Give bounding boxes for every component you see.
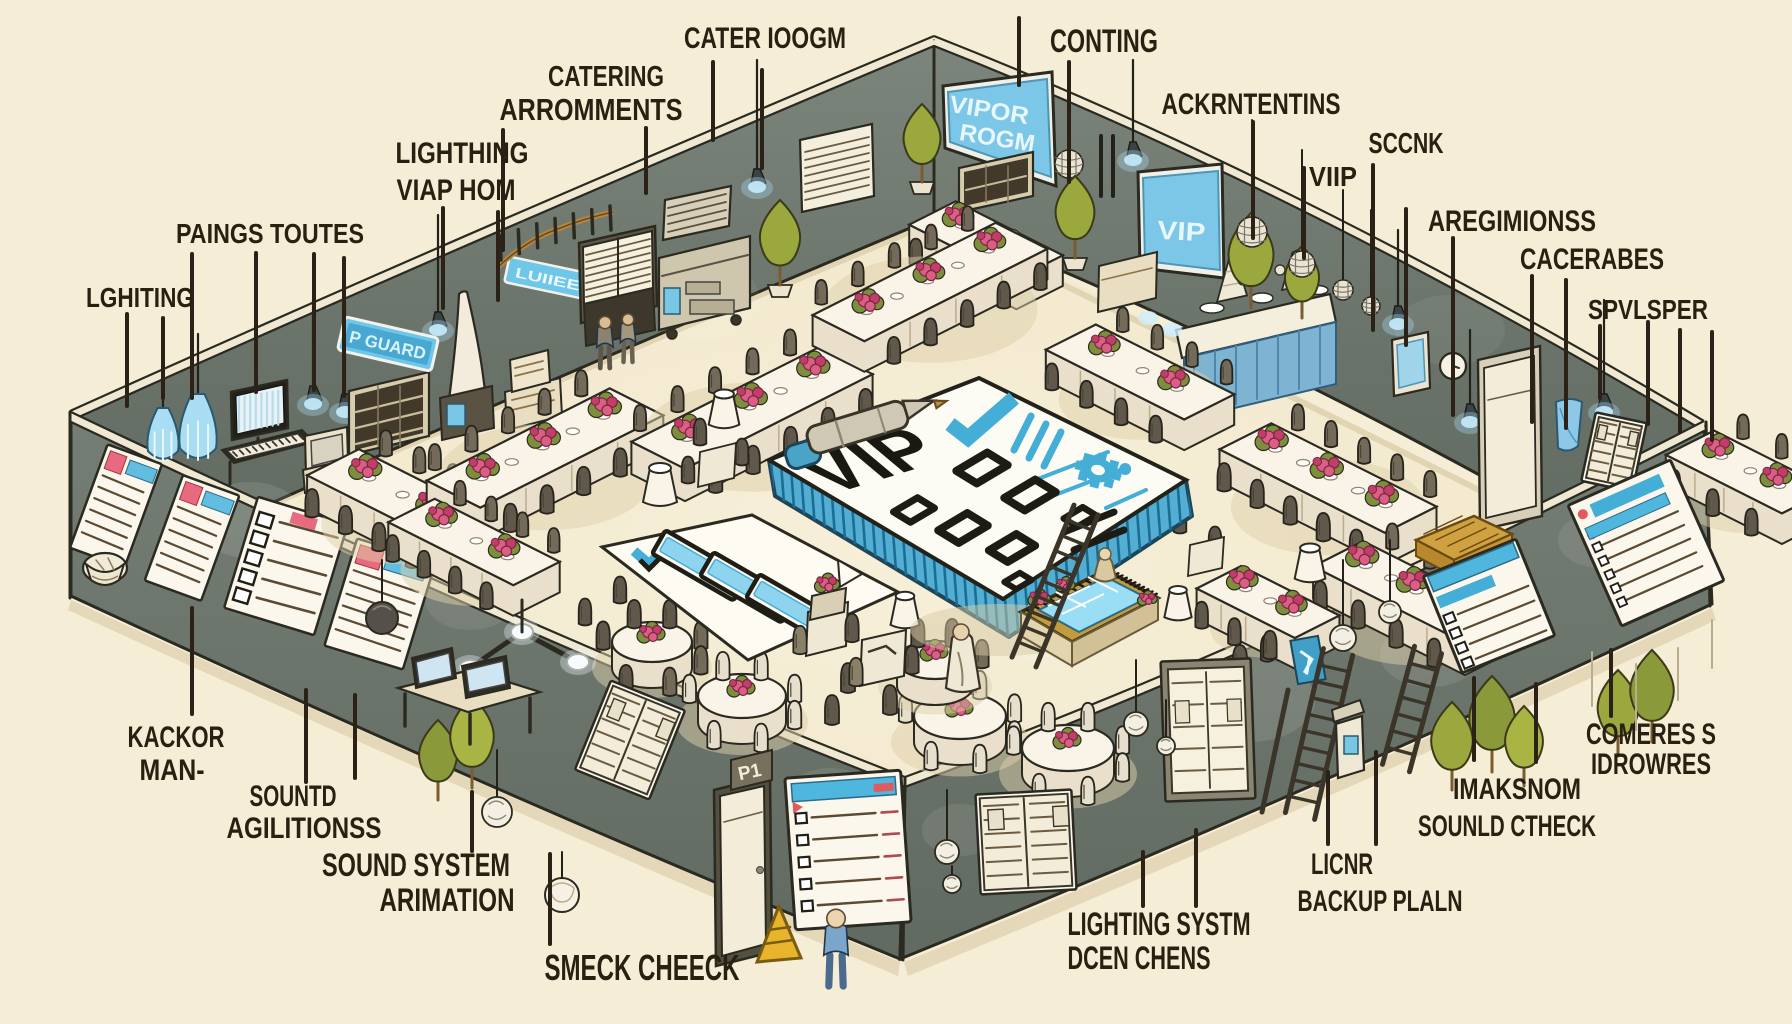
svg-text:CACERABES: CACERABES — [1520, 243, 1664, 276]
svg-text:VIIP: VIIP — [1309, 161, 1357, 192]
svg-text:PAINGS TOUTES: PAINGS TOUTES — [176, 218, 364, 249]
svg-text:IMAKSNOM: IMAKSNOM — [1453, 773, 1581, 806]
svg-text:DCEN CHENS: DCEN CHENS — [1068, 940, 1211, 976]
svg-text:AREGIMIONSS: AREGIMIONSS — [1428, 205, 1596, 238]
svg-text:LGHITING: LGHITING — [86, 282, 194, 313]
svg-text:ACKRNTENTINS: ACKRNTENTINS — [1162, 88, 1341, 121]
svg-text:SOUNLD CTHECK: SOUNLD CTHECK — [1418, 810, 1596, 843]
svg-text:LICNR: LICNR — [1311, 848, 1373, 881]
svg-text:VIAP HOM: VIAP HOM — [397, 174, 516, 207]
svg-text:CATER IOOGM: CATER IOOGM — [684, 22, 846, 55]
svg-text:BACKUP PLALN: BACKUP PLALN — [1298, 885, 1463, 918]
svg-text:CONTING: CONTING — [1050, 23, 1158, 59]
svg-text:ARIMATION: ARIMATION — [380, 882, 515, 918]
svg-text:ARROMMENTS: ARROMMENTS — [500, 92, 683, 127]
svg-text:SMECK CHEECK: SMECK CHEECK — [545, 947, 740, 988]
svg-text:MAN-: MAN- — [140, 754, 205, 787]
svg-text:AGILITIONSS: AGILITIONSS — [227, 812, 382, 845]
svg-text:LIGHTING SYSTM: LIGHTING SYSTM — [1068, 906, 1251, 942]
svg-text:SCCNK: SCCNK — [1369, 128, 1444, 160]
svg-text:CATERING: CATERING — [548, 61, 664, 93]
svg-text:VIP: VIP — [1157, 215, 1207, 247]
svg-text:COMERES S: COMERES S — [1586, 718, 1716, 751]
svg-text:KACKOR: KACKOR — [128, 721, 225, 754]
svg-text:SOUND SYSTEM: SOUND SYSTEM — [322, 847, 510, 883]
svg-text:SPVLSPER: SPVLSPER — [1588, 294, 1708, 325]
svg-text:IDROWRES: IDROWRES — [1591, 748, 1711, 781]
svg-text:LIGHTHING: LIGHTHING — [396, 137, 529, 170]
svg-text:SOUNTD: SOUNTD — [250, 780, 337, 813]
